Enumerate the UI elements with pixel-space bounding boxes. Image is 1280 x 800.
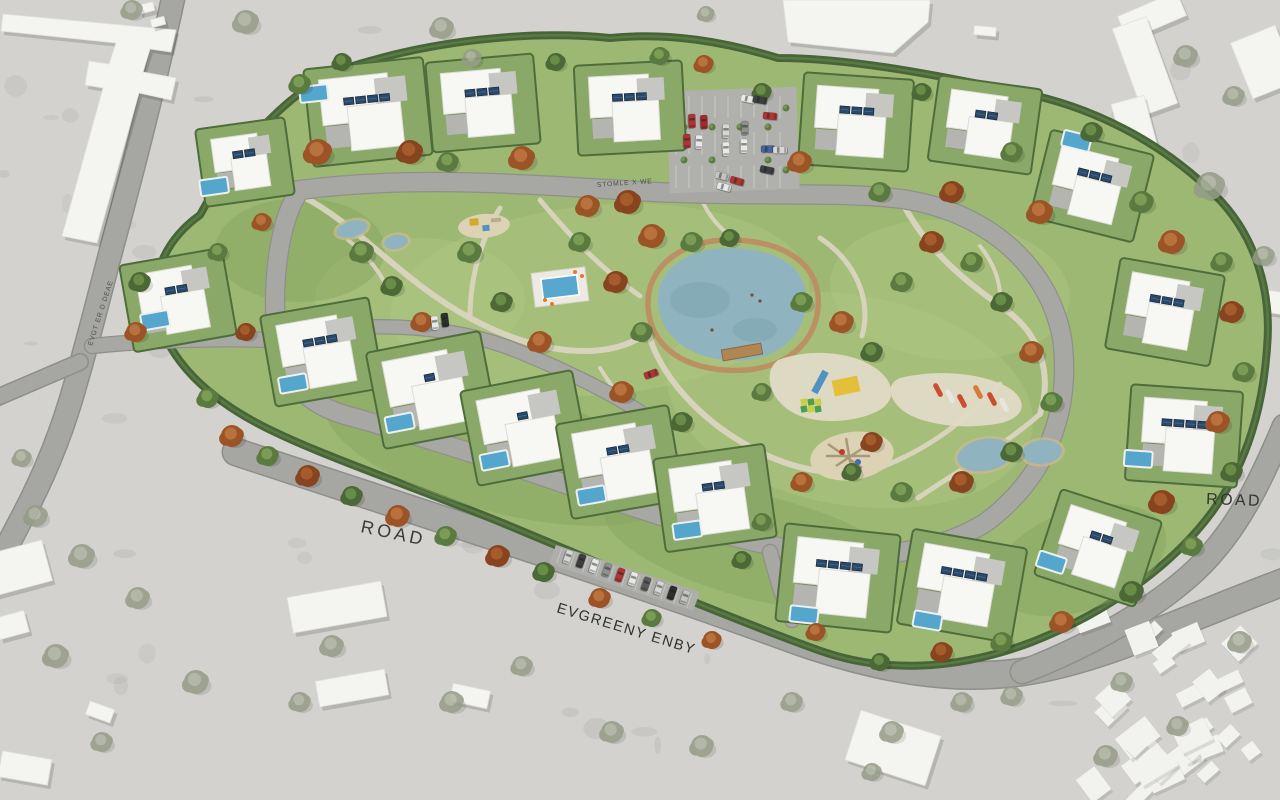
tree-canopy-highlight (965, 254, 976, 265)
ground-speckle (114, 676, 129, 695)
tree-canopy-highlight (441, 154, 452, 165)
tree-canopy-highlight (309, 142, 323, 156)
tree-canopy-highlight (865, 434, 876, 445)
tree-canopy-highlight (125, 2, 136, 13)
house-roof (1142, 302, 1194, 350)
tree-canopy-highlight (945, 184, 957, 196)
roof-deck (446, 114, 468, 136)
house-roof (600, 450, 657, 501)
ground-speckle (4, 75, 27, 96)
car-rear-window (689, 125, 695, 127)
house-roof (836, 114, 886, 158)
parking-shrub (681, 157, 685, 161)
tree-canopy-highlight (514, 149, 527, 162)
car-windshield (696, 139, 702, 142)
tree-canopy-highlight (1233, 634, 1245, 646)
tree-canopy-highlight (74, 547, 87, 560)
tree-canopy-highlight (895, 484, 906, 495)
tree-canopy-highlight (701, 8, 710, 17)
roof-deck (815, 129, 838, 151)
house (653, 444, 777, 553)
car-windshield (742, 125, 748, 128)
tree-canopy-highlight (698, 57, 708, 67)
tree-canopy-highlight (1005, 688, 1016, 699)
tree-canopy-highlight (873, 184, 884, 195)
backyard-pool (278, 373, 308, 394)
tree-canopy-highlight (1125, 584, 1137, 596)
tree-canopy-highlight (16, 451, 26, 461)
house (260, 297, 384, 407)
ground-speckle (43, 115, 59, 120)
tree-canopy-highlight (95, 734, 106, 745)
ground-speckle (138, 643, 155, 663)
tree-canopy-highlight (1211, 414, 1223, 426)
tree-canopy-highlight (865, 344, 876, 355)
tree-canopy-highlight (1099, 748, 1111, 760)
tree-canopy-highlight (325, 638, 337, 650)
tree-canopy-highlight (48, 647, 61, 660)
house (897, 529, 1028, 644)
tree-canopy-highlight (515, 658, 526, 669)
tree-canopy-highlight (925, 234, 937, 246)
tree-canopy-highlight (1005, 444, 1016, 455)
tree-canopy-highlight (1154, 493, 1167, 506)
tree-canopy-highlight (1201, 175, 1216, 190)
car-windshield (777, 147, 780, 153)
tree-canopy-highlight (293, 76, 304, 87)
car-windshield (723, 146, 729, 149)
tree-canopy-highlight (1225, 304, 1237, 316)
backyard-pool (1124, 450, 1153, 468)
car-windshield (765, 146, 768, 152)
play-mat-tile (800, 405, 807, 412)
tree-canopy-highlight (261, 448, 272, 459)
tree-canopy-highlight (537, 564, 548, 575)
roof-deck (1174, 284, 1204, 311)
car (699, 115, 708, 130)
car-windshield (723, 128, 729, 131)
pool-lounger (573, 270, 577, 274)
tree-canopy-highlight (685, 234, 696, 245)
tree-canopy-highlight (793, 154, 805, 166)
ground-speckle (297, 551, 312, 564)
ground-speckle (194, 96, 214, 102)
pond-depth (733, 318, 777, 342)
parking-shrub (709, 157, 713, 161)
tree-canopy-highlight (795, 474, 806, 485)
house (928, 75, 1043, 175)
tree-canopy-highlight (391, 508, 403, 520)
tree-canopy-highlight (935, 644, 946, 655)
play-equipment (469, 218, 479, 226)
play-mat-tile (807, 405, 814, 412)
pond-depth (670, 282, 730, 318)
parking-shrub (783, 105, 787, 109)
ground-speckle (113, 549, 136, 558)
tree-canopy-highlight (29, 508, 41, 520)
climbing-frame-top (839, 449, 845, 455)
tree-canopy-highlight (439, 528, 450, 539)
car-windshield (689, 118, 695, 121)
car (694, 135, 703, 150)
tree-canopy-highlight (1185, 538, 1196, 549)
tree-canopy-highlight (345, 488, 356, 499)
tree-canopy-highlight (495, 294, 506, 305)
house (798, 72, 914, 171)
tree-canopy-highlight (895, 274, 906, 285)
house-roof (1163, 428, 1215, 474)
parking-shrub (765, 124, 769, 128)
tree-canopy-highlight (240, 325, 250, 335)
tree-canopy-highlight (605, 724, 617, 736)
house-roof (231, 154, 271, 191)
tree-canopy-highlight (188, 673, 201, 686)
tree-canopy-highlight (955, 694, 966, 705)
tree-canopy-highlight (654, 49, 664, 59)
tree-canopy-highlight (1164, 233, 1177, 246)
backyard-pool (576, 485, 606, 506)
backyard-pool (789, 605, 819, 624)
roof-deck (793, 584, 818, 608)
car (722, 124, 730, 139)
tree-canopy-highlight (225, 428, 237, 440)
site-plan-map: ROAD EVGREENY ENBY ROAD STOMLE X WE EVGT… (0, 0, 1280, 800)
backyard-pool (672, 520, 702, 540)
ground-speckle (631, 727, 657, 737)
ground-speckle (704, 653, 710, 664)
backyard-pool (912, 610, 942, 631)
duck (758, 299, 761, 302)
parking-shrub (737, 124, 741, 128)
ground-speckle (132, 245, 157, 259)
tree-canopy-highlight (1055, 614, 1067, 626)
ground-speckle (562, 707, 579, 717)
tree-canopy-highlight (256, 215, 266, 225)
tree-canopy-highlight (201, 390, 212, 401)
tree-canopy-highlight (301, 468, 313, 480)
tree-canopy-highlight (212, 245, 222, 255)
tree-canopy-highlight (491, 548, 503, 560)
building-footprint (974, 26, 997, 37)
pool-lounger (580, 274, 584, 278)
tree-canopy-highlight (609, 274, 621, 286)
tree-canopy-highlight (415, 314, 426, 325)
tree-canopy-highlight (131, 590, 143, 602)
tree-canopy-highlight (466, 51, 476, 61)
house-roof (505, 415, 562, 467)
pool-lounger (550, 302, 554, 306)
car-rear-window (723, 135, 729, 137)
roof-deck (972, 556, 1006, 585)
ground-speckle (288, 538, 306, 548)
tree-canopy-highlight (550, 55, 560, 65)
tree-canopy-highlight (293, 694, 304, 705)
car (687, 114, 696, 129)
tree-canopy-highlight (336, 55, 346, 65)
duck (710, 328, 713, 331)
tree-canopy-highlight (916, 85, 926, 95)
house-roof (937, 576, 995, 627)
tree-canopy-highlight (238, 13, 251, 26)
tree-canopy-highlight (1045, 394, 1056, 405)
tree-canopy-highlight (795, 294, 806, 305)
tree-canopy-highlight (463, 244, 475, 256)
car-rear-window (742, 132, 748, 134)
tree-canopy-highlight (1085, 124, 1096, 135)
tree-canopy-highlight (995, 634, 1006, 645)
tree-canopy-highlight (866, 765, 876, 775)
tree-canopy-highlight (593, 590, 604, 601)
tree-canopy-highlight (995, 294, 1006, 305)
tree-canopy-highlight (635, 324, 646, 335)
tree-canopy-highlight (402, 143, 415, 156)
tree-canopy-highlight (675, 414, 686, 425)
tree-canopy-highlight (846, 465, 856, 475)
tree-canopy-highlight (1227, 88, 1238, 99)
tree-canopy-highlight (736, 553, 746, 563)
house-roof (696, 487, 750, 535)
ground-speckle (102, 413, 127, 424)
house (574, 60, 687, 156)
road-label-right: ROAD (1206, 491, 1262, 510)
house-roof (612, 100, 660, 142)
car-rear-window (784, 147, 786, 153)
car (773, 147, 788, 155)
tree-canopy-highlight (581, 198, 593, 210)
ground-speckle (654, 736, 661, 754)
roof-deck (374, 75, 408, 103)
car-windshield (767, 113, 770, 119)
roof-deck (945, 129, 967, 150)
tree-canopy-highlight (1032, 203, 1045, 216)
car-windshield (684, 138, 690, 141)
house-roof (303, 340, 357, 388)
car-rear-window (723, 153, 729, 155)
car (763, 112, 779, 121)
tree-canopy-highlight (810, 625, 820, 635)
car-rear-window (684, 145, 690, 147)
play-mat-tile (807, 398, 814, 405)
tree-canopy-highlight (874, 655, 884, 665)
tree-canopy-highlight (445, 694, 457, 706)
play-mat-tile (814, 398, 821, 405)
tree-canopy-highlight (756, 85, 766, 95)
house-roof (347, 101, 405, 151)
tree-canopy-highlight (615, 384, 627, 396)
ground-speckle (534, 581, 560, 600)
ground-speckle (358, 26, 382, 34)
car-windshield (741, 143, 747, 146)
tree-canopy-highlight (1225, 464, 1236, 475)
ground-speckle (24, 341, 38, 346)
tree-canopy-highlight (1257, 248, 1268, 259)
car-rear-window (701, 126, 707, 128)
backyard-pool (199, 177, 229, 197)
roof-deck (993, 99, 1022, 123)
tree-canopy-highlight (129, 324, 140, 335)
house (1105, 257, 1225, 366)
tree-canopy-highlight (644, 227, 657, 240)
tree-canopy-highlight (756, 515, 766, 525)
tree-canopy-highlight (885, 724, 897, 736)
duck (750, 293, 753, 296)
parking-shrub (709, 124, 713, 128)
tree-canopy-highlight (646, 611, 656, 621)
car (682, 134, 691, 149)
tree-canopy-highlight (1005, 144, 1016, 155)
house-roof (465, 94, 515, 137)
car (741, 121, 749, 136)
tree-canopy-highlight (695, 738, 707, 750)
play-mat-tile (800, 398, 807, 405)
car (740, 139, 748, 154)
tree-canopy-highlight (785, 694, 796, 705)
house (192, 117, 295, 207)
car-rear-window (696, 146, 702, 148)
tree-canopy-highlight (533, 334, 545, 346)
tree-canopy-highlight (835, 314, 847, 326)
play-mat-tile (814, 405, 821, 412)
house (425, 53, 540, 152)
tree-canopy-highlight (1215, 254, 1226, 265)
roof-deck (1123, 315, 1147, 339)
tree-canopy-highlight (1135, 194, 1147, 206)
house (775, 523, 901, 633)
tree-canopy-highlight (385, 278, 396, 289)
community-pool (541, 275, 579, 299)
tree-canopy-highlight (706, 633, 716, 643)
house-roof (815, 569, 870, 618)
tree-canopy-highlight (435, 20, 447, 32)
parking-shrub (765, 157, 769, 161)
tree-canopy-highlight (355, 244, 367, 256)
car (721, 142, 730, 157)
tree-canopy-highlight (1171, 718, 1182, 729)
tree-canopy-highlight (1025, 344, 1037, 356)
tree-canopy-highlight (1179, 48, 1191, 60)
ground-speckle (62, 108, 78, 123)
tree-canopy-highlight (1115, 674, 1126, 685)
tree-canopy-highlight (1237, 364, 1248, 375)
tree-canopy-highlight (620, 193, 633, 206)
pool-lounger (543, 298, 547, 302)
ground-speckle (1048, 701, 1077, 707)
tree-canopy-highlight (756, 385, 766, 395)
car-rear-window (741, 150, 747, 152)
parking-shrub (783, 167, 787, 171)
tree-canopy-highlight (724, 231, 734, 241)
tree-canopy-highlight (133, 274, 144, 285)
tree-canopy-highlight (955, 474, 967, 486)
roof-deck (592, 118, 614, 139)
car-windshield (701, 119, 707, 122)
tree-canopy-highlight (573, 234, 584, 245)
play-equipment (482, 225, 489, 232)
ground-speckle (1182, 142, 1199, 163)
